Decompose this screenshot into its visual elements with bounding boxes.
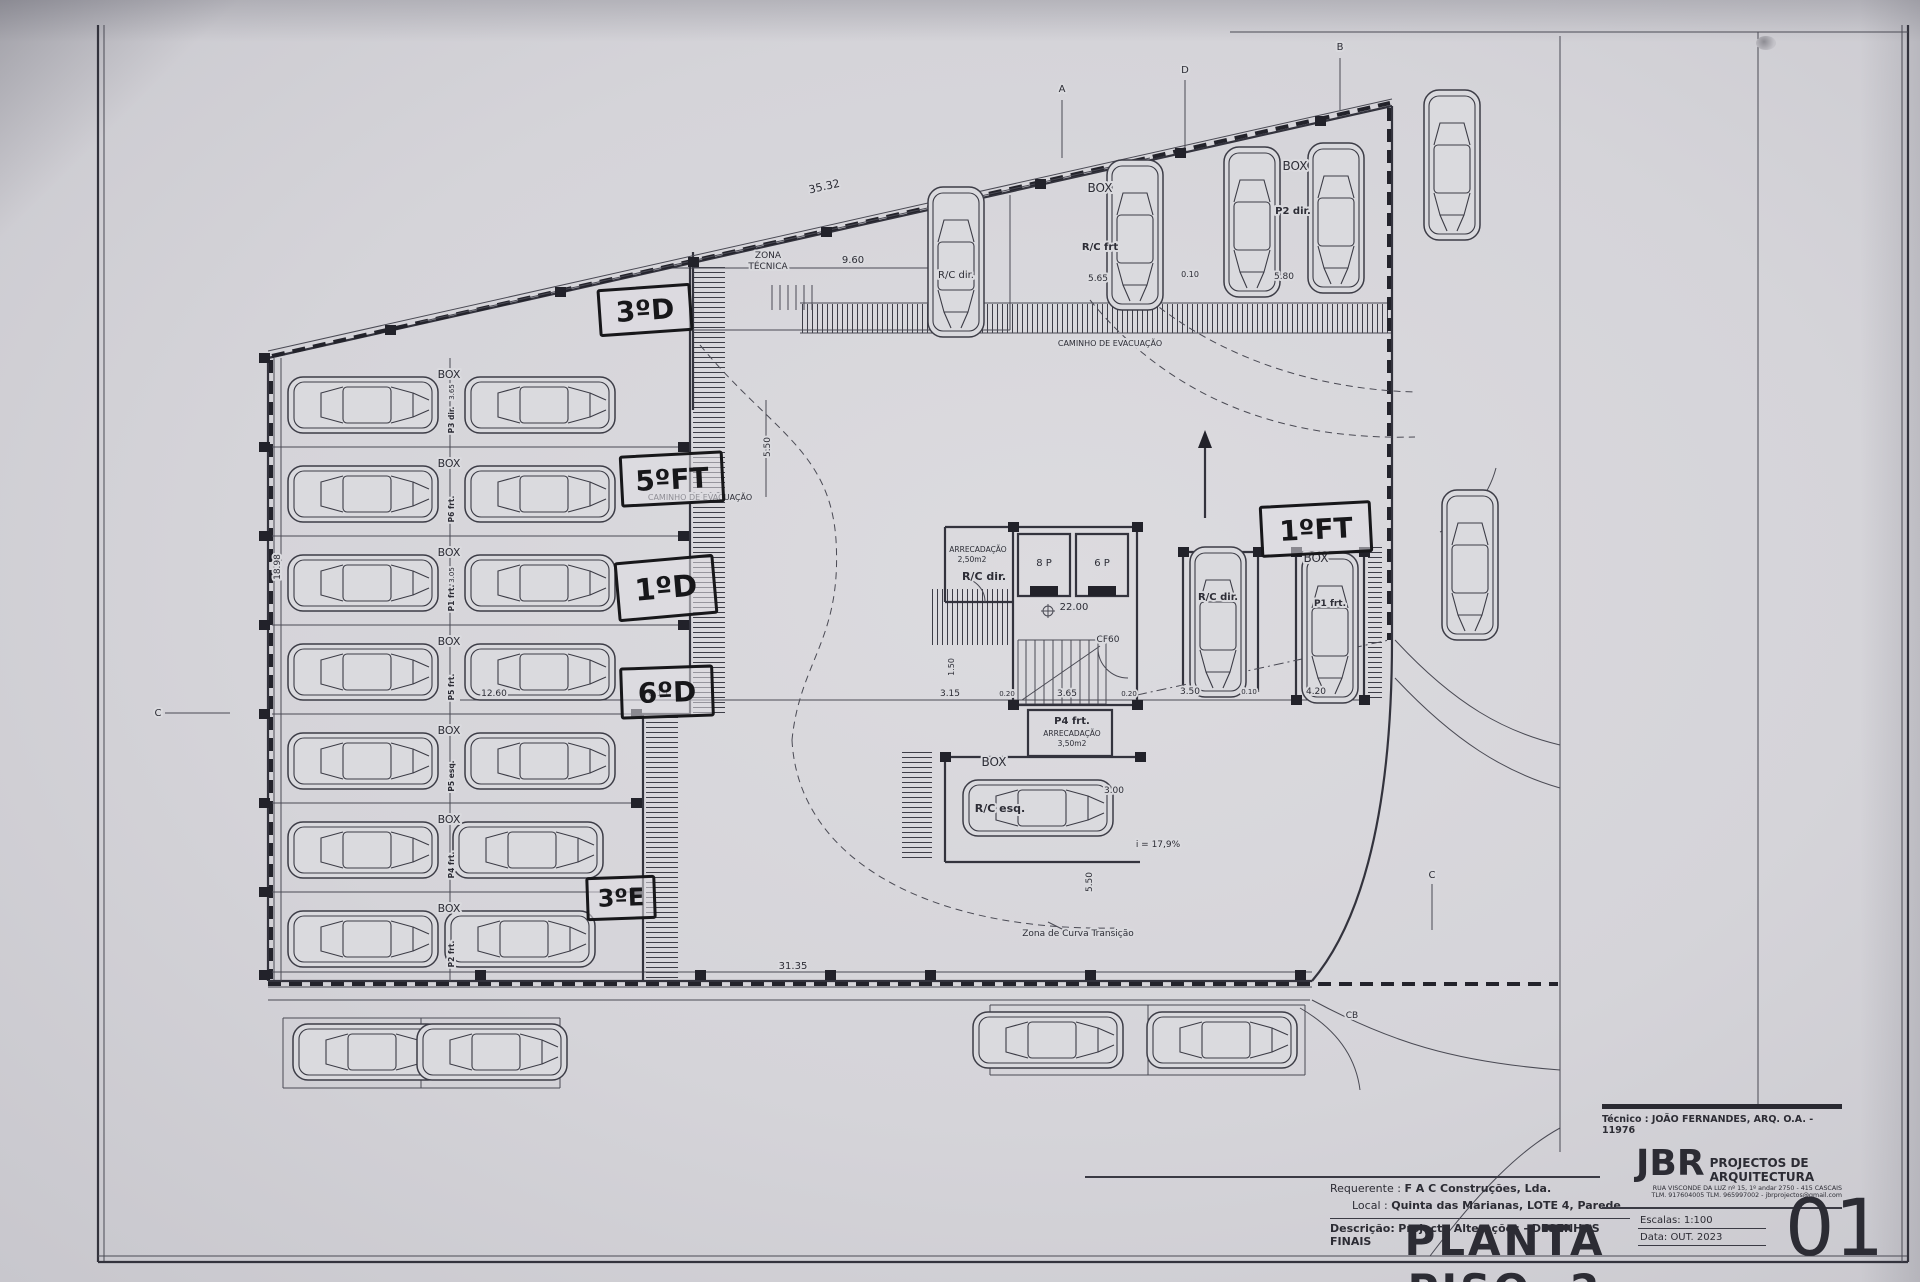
parking-box-label: BOX bbox=[438, 635, 461, 648]
car-icon bbox=[465, 733, 615, 789]
parking-box-label: BOX bbox=[438, 368, 461, 381]
car-icon bbox=[973, 1012, 1123, 1068]
label-p2-dir: P2 dir. bbox=[1275, 206, 1311, 217]
car-icon bbox=[928, 187, 984, 337]
column-marker bbox=[259, 620, 270, 630]
axis-a: A bbox=[1059, 84, 1066, 95]
label-box-top-1: BOX bbox=[1088, 181, 1113, 195]
label-level-22: 22.00 bbox=[1060, 602, 1089, 613]
ramp-hatch bbox=[646, 714, 678, 981]
binder-hole-icon bbox=[1756, 36, 1776, 50]
label-arrecadacao-2b: 3,50m2 bbox=[1058, 739, 1087, 748]
column-marker bbox=[1035, 179, 1046, 189]
car-icon bbox=[445, 911, 595, 967]
car-icon bbox=[453, 822, 603, 878]
parking-stall-label: P4 frt. bbox=[447, 851, 456, 878]
parking-stall-label: P5 frt. bbox=[447, 673, 456, 700]
dim-5-50-right: 5.50 bbox=[1085, 872, 1095, 892]
firm-logo: JBR bbox=[1636, 1148, 1705, 1180]
column-marker bbox=[259, 970, 270, 980]
axis-b: B bbox=[1337, 42, 1344, 53]
label-zona-tecnica-1: ZONA bbox=[755, 251, 782, 261]
car-icon bbox=[288, 555, 438, 611]
dim-5-80: 5.80 bbox=[1274, 272, 1294, 282]
parking-stall-label: P2 frt. bbox=[447, 940, 456, 967]
escala-value: 1:100 bbox=[1684, 1215, 1713, 1226]
label-rc-esq: R/C esq. bbox=[975, 802, 1025, 815]
column-marker bbox=[1008, 522, 1019, 532]
wall-path bbox=[1098, 648, 1128, 678]
car-icon bbox=[1107, 160, 1163, 310]
label-p1-frt: P1 frt. bbox=[1314, 599, 1346, 609]
note-3d: 3ºD bbox=[596, 283, 693, 337]
label-arrecadacao-1a: ARRECADAÇÃO bbox=[949, 545, 1007, 554]
escala-label: Escalas: bbox=[1640, 1215, 1681, 1226]
column-marker bbox=[825, 970, 836, 980]
dim-31-35: 31.35 bbox=[779, 961, 808, 972]
axis-cb: CB bbox=[1346, 1011, 1358, 1021]
axis-c-right: C bbox=[1429, 870, 1436, 881]
label-elevator-6p: 6 P bbox=[1094, 558, 1110, 569]
parking-box-label: BOX bbox=[438, 457, 461, 470]
dim-3-15: 3.15 bbox=[940, 689, 960, 699]
data-label: Data: bbox=[1640, 1232, 1667, 1243]
column-marker bbox=[475, 970, 486, 980]
ramp-hatch bbox=[1368, 545, 1382, 700]
level-marker-icon bbox=[1041, 604, 1055, 618]
car-icon bbox=[1442, 490, 1498, 640]
car-icon bbox=[1424, 90, 1480, 240]
column-marker bbox=[631, 798, 642, 808]
requerente-value: F A C Construções, Lda. bbox=[1404, 1182, 1551, 1195]
label-box-top-2: BOX bbox=[1283, 159, 1308, 173]
note-1d: 1ºD bbox=[614, 554, 719, 622]
column-marker bbox=[821, 227, 832, 237]
car-icon bbox=[288, 644, 438, 700]
car-icon bbox=[465, 555, 615, 611]
note-3e: 3ºE bbox=[585, 875, 656, 921]
parking-box-label: BOX bbox=[438, 724, 461, 737]
column-marker bbox=[555, 287, 566, 297]
column-marker bbox=[1008, 700, 1019, 710]
tecnico-bar: Técnico : JOÃO FERNANDES, ARQ. O.A. - 11… bbox=[1602, 1104, 1842, 1136]
car-icon bbox=[288, 466, 438, 522]
column-marker bbox=[1132, 522, 1143, 532]
parking-stall-label: P3 dir. bbox=[447, 406, 456, 433]
column-marker bbox=[1291, 695, 1302, 705]
column-marker bbox=[695, 970, 706, 980]
dim-18-98: 18.98 bbox=[273, 554, 283, 580]
note-1ft: 1ºFT bbox=[1259, 500, 1374, 558]
car-icon bbox=[1190, 547, 1246, 697]
parking-box-label: BOX bbox=[438, 546, 461, 559]
column-marker bbox=[678, 531, 689, 541]
parking-box-label: BOX bbox=[438, 902, 461, 915]
column-marker bbox=[1295, 970, 1306, 980]
dim-3-00: 3.00 bbox=[1104, 786, 1124, 796]
data-value: OUT. 2023 bbox=[1670, 1232, 1722, 1243]
car-icon bbox=[288, 377, 438, 433]
column-marker bbox=[1359, 695, 1370, 705]
parking-box-label: BOX bbox=[438, 813, 461, 826]
car-icon bbox=[288, 733, 438, 789]
car-icon bbox=[1147, 1012, 1297, 1068]
ramp-hatch bbox=[930, 589, 1013, 645]
ramp-hatch bbox=[800, 304, 1390, 333]
sheet-number: 01 bbox=[1772, 1190, 1897, 1268]
column-marker bbox=[259, 353, 270, 363]
titleblock-rule-1 bbox=[1085, 1176, 1600, 1178]
drawing-title: PLANTA PISO -2 bbox=[1340, 1216, 1670, 1282]
column-marker bbox=[259, 531, 270, 541]
label-rc-frt-top: R/C frt bbox=[1082, 242, 1118, 253]
dim-5-65: 5.65 bbox=[1088, 274, 1108, 284]
label-rc-dir-right: R/C dir. bbox=[1198, 592, 1238, 603]
label-zona-tecnica-2: TÉCNICA bbox=[747, 260, 788, 272]
parking-stall-label: P5 esq. bbox=[447, 760, 456, 791]
parking-stall-label: P1 frt. bbox=[447, 584, 456, 611]
car-icon bbox=[288, 822, 438, 878]
floor-plan-drawing: BOXP3 dir.BOXP6 frt.BOXP1 frt.BOXP5 frt.… bbox=[0, 0, 1920, 1282]
plan-rect bbox=[1088, 586, 1116, 596]
column-marker bbox=[940, 752, 951, 762]
column-marker bbox=[1175, 148, 1186, 158]
axis-c-left: C bbox=[155, 708, 162, 719]
column-marker bbox=[1132, 700, 1143, 710]
dim-4-20: 4.20 bbox=[1306, 687, 1326, 697]
car-icon bbox=[288, 911, 438, 967]
car-icon bbox=[1302, 553, 1358, 703]
column-marker bbox=[385, 325, 396, 335]
label-arrecadacao-2a: ARRECADAÇÃO bbox=[1043, 729, 1101, 738]
dim-0-10-b: 0.10 bbox=[1241, 688, 1257, 696]
car-icon bbox=[465, 466, 615, 522]
label-rc-dir-top: R/C dir. bbox=[938, 270, 974, 281]
column-marker bbox=[678, 620, 689, 630]
local-label: Local : bbox=[1352, 1199, 1388, 1212]
wall-path bbox=[1395, 678, 1560, 788]
car-icon bbox=[417, 1024, 567, 1080]
ramp-arrow-icon bbox=[1198, 430, 1212, 448]
firm-name: PROJECTOS DE ARQUITECTURA bbox=[1710, 1148, 1842, 1184]
dim-9-60: 9.60 bbox=[842, 255, 864, 266]
column-marker bbox=[259, 798, 270, 808]
scale-date-box: Escalas: 1:100 Data: OUT. 2023 bbox=[1638, 1214, 1766, 1246]
tecnico-text: Técnico : JOÃO FERNANDES, ARQ. O.A. - 11… bbox=[1602, 1114, 1813, 1136]
dim-0-20-b: 0.20 bbox=[1121, 690, 1137, 698]
car-icon bbox=[465, 377, 615, 433]
label-elevator-8p: 8 P bbox=[1036, 558, 1052, 569]
ramp-hatch bbox=[902, 748, 932, 862]
column-marker bbox=[1315, 116, 1326, 126]
dim-0-10-top: 0.10 bbox=[1181, 270, 1199, 279]
label-cf60: CF60 bbox=[1097, 635, 1120, 645]
parking-stall-label: P6 frt. bbox=[447, 495, 456, 522]
plan-rect bbox=[1030, 586, 1058, 596]
label-caminho-evacuacao-top: CAMINHO DE EVACUAÇÃO bbox=[1058, 338, 1162, 348]
column-marker bbox=[678, 442, 689, 452]
dim-3-65-row1: 3.65 bbox=[448, 384, 456, 400]
column-marker bbox=[1178, 547, 1189, 557]
ramp-hatching bbox=[646, 263, 1390, 981]
dim-0-20-a: 0.20 bbox=[999, 690, 1015, 698]
dim-3-50: 3.50 bbox=[1180, 687, 1200, 697]
requerente-label: Requerente : bbox=[1330, 1182, 1401, 1195]
car-icon bbox=[1224, 147, 1280, 297]
column-marker bbox=[688, 257, 699, 267]
dim-top-slope: 35.32 bbox=[807, 177, 841, 197]
label-arrecadacao-1b: 2,50m2 bbox=[958, 555, 987, 564]
wall-path bbox=[1395, 640, 1560, 745]
parked-cars bbox=[288, 90, 1498, 1080]
label-box-resq: BOX bbox=[982, 755, 1007, 769]
dim-3-05-row3: 3.05 bbox=[448, 567, 456, 583]
local-value: Quinta das Marianas, LOTE 4, Parede bbox=[1391, 1199, 1621, 1212]
label-slope: i = 17,9% bbox=[1136, 840, 1181, 850]
column-marker bbox=[259, 887, 270, 897]
dim-5-50-top: 5.50 bbox=[763, 437, 773, 457]
label-rc-dir-core: R/C dir. bbox=[962, 570, 1006, 583]
note-6d: 6ºD bbox=[619, 664, 715, 719]
dim-3-65: 3.65 bbox=[1057, 689, 1077, 699]
label-zona-curva: Zona de Curva Transição bbox=[1022, 929, 1134, 939]
note-5ft: 5ºFT bbox=[619, 450, 726, 507]
column-marker bbox=[1135, 752, 1146, 762]
column-marker bbox=[1085, 970, 1096, 980]
column-marker bbox=[925, 970, 936, 980]
dim-1-50: 1.50 bbox=[947, 658, 956, 676]
column-marker bbox=[259, 442, 270, 452]
column-marker bbox=[259, 709, 270, 719]
car-icon bbox=[1308, 143, 1364, 293]
label-p4-frt: P4 frt. bbox=[1054, 716, 1090, 727]
axis-d: D bbox=[1181, 65, 1189, 76]
photographed-floor-plan-sheet: BOXP3 dir.BOXP6 frt.BOXP1 frt.BOXP5 frt.… bbox=[0, 0, 1920, 1282]
dim-12-60: 12.60 bbox=[481, 689, 507, 699]
